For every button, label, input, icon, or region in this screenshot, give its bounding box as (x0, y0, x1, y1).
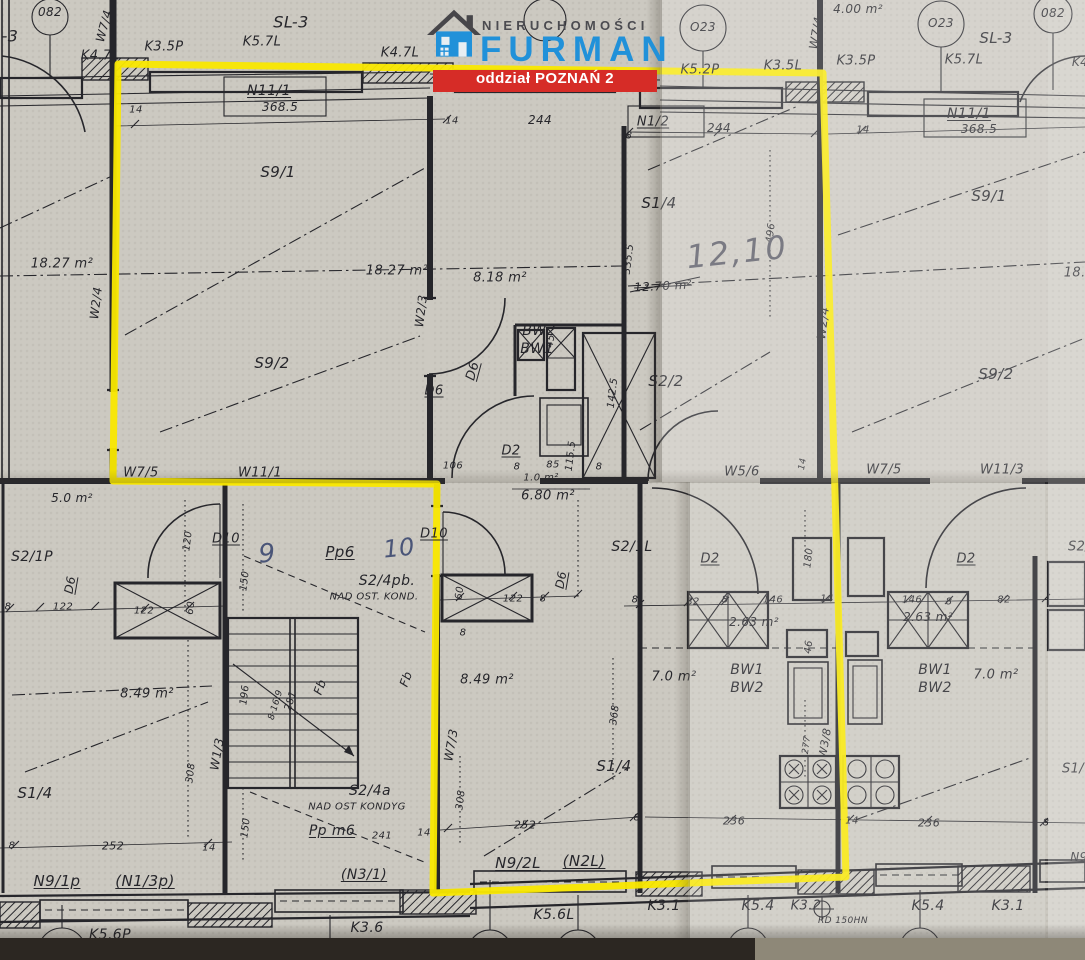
plan-label: W2/3 (412, 294, 430, 328)
plan-label: SL-3 (979, 29, 1012, 47)
plan-label: 8.49 m² (120, 687, 174, 702)
plan-label: 8 (626, 131, 633, 142)
plan-label: 241 (372, 831, 392, 842)
plan-label: 368.5 (262, 100, 298, 114)
plan-label: 7.0 m² (973, 668, 1018, 683)
plan-label: 82 (997, 595, 1011, 606)
plan-label: Fb (311, 677, 329, 696)
plan-label: K5.7L (945, 53, 983, 68)
logo-branch-banner: oddział POZNAŃ 2 (433, 70, 657, 92)
plan-label: 335.5 (622, 243, 637, 275)
plan-label: 082 (1041, 6, 1065, 20)
plan-label: S2/1L (611, 539, 652, 555)
plan-label: 252 (514, 819, 536, 832)
plan-label: S2/1P (11, 549, 53, 565)
plan-label: 281 (283, 690, 299, 713)
plan-label: 8.18 m² (473, 271, 527, 286)
plan-label: W11/3 (980, 463, 1024, 478)
plan-label: 368 (608, 704, 621, 725)
plan-label: 18.2 (1064, 266, 1085, 281)
plan-label: W7/4 (93, 8, 115, 43)
plan-label: 308 (454, 789, 467, 810)
plan-label: S9/1 (971, 187, 1006, 205)
plan-label: K3.6 (350, 920, 383, 936)
plan-label: 5.0 m² (51, 491, 93, 505)
plan-label: S2/ (1068, 540, 1085, 555)
plan-label: S2/4a (349, 783, 391, 799)
plan-label: K4.7L (81, 49, 119, 64)
plan-label: 8 (946, 597, 953, 608)
plan-label: K5.6L (533, 907, 574, 923)
plan-label: 2.63 m² (903, 610, 953, 624)
plan-label: Pp m6 (309, 823, 355, 839)
plan-label: K3.2 (791, 899, 822, 914)
plan-label: 12.70 m² (634, 277, 693, 294)
plan-label: (N2L) (563, 852, 606, 870)
plan-label: S1/4 (596, 757, 631, 775)
plan-label: K4 (1072, 55, 1085, 69)
plan-label: W3/8 (816, 727, 834, 759)
plan-label: 82 (686, 597, 700, 608)
plan-label: 8 (540, 594, 547, 605)
plan-label: 8 (596, 462, 603, 473)
plan-label: N9 (1070, 850, 1085, 864)
plan-label: BW2 (730, 680, 764, 696)
plan-label: 196 (238, 684, 251, 705)
plan-label: 2.63 m² (729, 615, 779, 629)
plan-label: 8 (632, 595, 639, 606)
plan-label: 14 (129, 105, 143, 116)
plan-label: 60 (185, 601, 198, 616)
plan-label: RD 150HN (818, 916, 868, 926)
plan-label: 122 (53, 602, 73, 613)
plan-label: SL-3 (273, 13, 308, 32)
plan-label: D6 (424, 384, 443, 399)
plan-label: BW1 (730, 662, 764, 678)
plan-label: N11/1 (247, 83, 291, 99)
plan-label: 18.27 m² (366, 264, 428, 279)
plan-label: 368.5 (961, 122, 997, 136)
plan-label: 8 (460, 628, 467, 639)
plan-label: W7/3 (441, 728, 460, 763)
plan-label: 146 (763, 595, 783, 606)
watermark-logo: NIERUCHOMOŚCI FURMAN oddział POZNAŃ 2 (425, 4, 677, 100)
floorplan-photo: 082-3W7/4K4.7LK3.5PSL-3K5.7LK4.7LN11/136… (0, 0, 1085, 960)
plan-label: N9/1p (34, 872, 81, 890)
plan-label: BW2 (918, 680, 952, 696)
logo-brand-name: FURMAN (480, 30, 674, 70)
plan-label: D2 (700, 552, 719, 567)
plan-label: S9/1 (260, 163, 295, 181)
plan-label: 9 (257, 538, 276, 569)
plan-label: 10 (382, 532, 416, 563)
plan-label: W7/4 (806, 16, 825, 51)
plan-label: K3.1 (991, 898, 1024, 914)
plan-label: K4.7L (381, 46, 419, 61)
plan-label: 244 (707, 121, 731, 135)
plan-label: 46 (803, 640, 816, 655)
plan-label: 277 (801, 735, 813, 754)
plan-label: W7/5 (123, 466, 158, 481)
plan-label: 180 (802, 547, 815, 568)
plan-label: 12,10 (684, 228, 789, 276)
plan-label: 142.5 (606, 377, 621, 409)
plan-label: 14 (797, 457, 809, 471)
plan-label: S9/2 (254, 354, 289, 372)
plan-label: W11/1 (238, 466, 282, 481)
house-icon (427, 8, 481, 62)
plan-label: 85 (546, 460, 560, 471)
plan-label: (N1/3p) (115, 872, 174, 890)
plan-label: 106 (443, 461, 463, 472)
plan-label: 14 (856, 125, 870, 136)
plan-label: S2/2 (648, 372, 683, 390)
plan-label: 45 (545, 334, 558, 349)
plan-label: (N3/1) (341, 867, 387, 883)
plan-label: W7/5 (866, 463, 901, 478)
plan-label: 8 (1043, 818, 1050, 829)
plan-label: Fb (397, 669, 415, 688)
plan-labels: 082-3W7/4K4.7LK3.5PSL-3K5.7LK4.7LN11/136… (0, 0, 1085, 960)
plan-label: S1/4 (17, 784, 52, 802)
plan-label: 8 (9, 841, 16, 852)
plan-label: 8 (722, 595, 729, 606)
plan-label: 4.00 m² (833, 2, 883, 16)
plan-label: 122 (134, 606, 154, 617)
plan-label: 14 (845, 816, 859, 827)
plan-label: 308 (184, 762, 197, 783)
plan-label: S2/4pb. (359, 573, 415, 589)
plan-label: 244 (528, 113, 552, 127)
plan-label: D6 (463, 360, 482, 382)
plan-label: 14 (202, 843, 216, 854)
plan-label: K3.5P (836, 54, 875, 69)
plan-label: D10 (420, 527, 448, 542)
desk-surface-light (755, 938, 1085, 960)
plan-label: D2 (501, 444, 520, 459)
plan-label: Pp6 (325, 543, 354, 561)
plan-label: 082 (38, 5, 62, 19)
plan-label: BW1 (918, 662, 952, 678)
plan-label: K5.4 (911, 898, 944, 914)
plan-label: 8·16.9 (267, 689, 286, 722)
plan-label: D2 (956, 552, 975, 567)
plan-label: 150 (239, 817, 252, 838)
plan-label: 115.5 (564, 440, 579, 472)
plan-label: K5.7L (243, 35, 281, 50)
plan-label: W2/4 (87, 286, 105, 320)
plan-label: W1/3 (207, 737, 226, 772)
plan-label: O23 (928, 16, 954, 30)
plan-label: W2/4 (814, 306, 832, 340)
plan-label: 18.27 m² (31, 257, 93, 272)
plan-label: N9/2L (495, 854, 541, 872)
plan-label: 236 (918, 817, 940, 830)
plan-label: 122 (503, 594, 523, 605)
plan-label: 6.80 m² (521, 489, 575, 504)
plan-label: K3.5P (144, 40, 183, 55)
plan-label: 236 (723, 815, 745, 828)
plan-label: K3.1 (647, 898, 680, 914)
plan-label: NAD OST KONDYG (308, 802, 406, 813)
plan-label: 14 (417, 828, 431, 839)
plan-label: 14 (820, 594, 834, 605)
plan-label: 7.0 m² (651, 670, 696, 685)
plan-label: 60 (454, 586, 467, 601)
plan-label: 252 (102, 840, 124, 853)
plan-label: S9/2 (978, 365, 1013, 383)
plan-label: 8 (634, 813, 641, 824)
plan-label: 1.0 m² (523, 473, 558, 484)
plan-label: K5.2P (680, 63, 719, 78)
plan-label: D10 (212, 532, 240, 547)
plan-label: 120 (181, 530, 194, 551)
plan-label: K5.4 (741, 898, 774, 914)
plan-label: -3 (2, 27, 19, 46)
plan-label: W5/6 (724, 465, 759, 480)
plan-label: 8 (5, 602, 12, 613)
plan-label: 8 (514, 462, 521, 473)
plan-label: 8.49 m² (460, 673, 514, 688)
plan-label: N1/2 (637, 115, 669, 130)
plan-label: O23 (690, 20, 716, 34)
plan-label: D6 (553, 570, 570, 590)
plan-label: S1/ (1062, 762, 1084, 777)
plan-label: S1/4 (641, 194, 676, 212)
plan-label: N11/1 (947, 106, 991, 122)
plan-label: 146 (902, 595, 922, 606)
plan-label: NAD OST. KOND. (330, 592, 419, 603)
plan-label: D6 (62, 575, 79, 595)
plan-label: 14 (445, 116, 459, 127)
plan-label: 150 (238, 570, 251, 591)
plan-label: K3.5L (764, 59, 802, 74)
